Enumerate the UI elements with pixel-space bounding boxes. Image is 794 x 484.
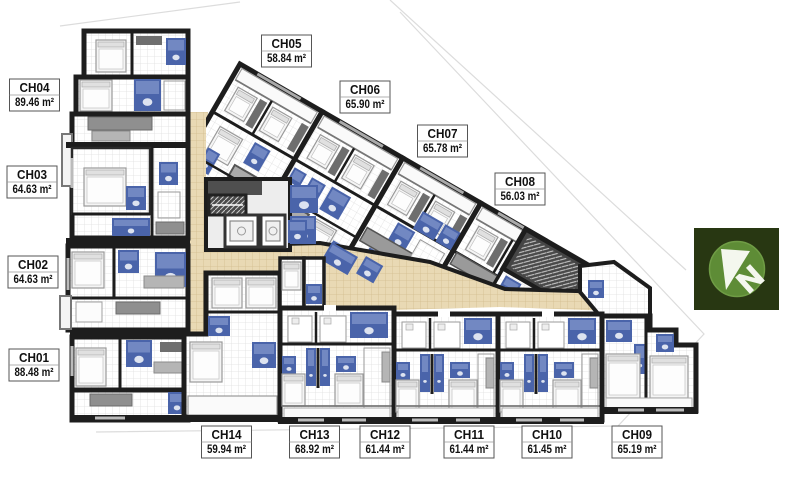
svg-text:CH12: CH12 [370,427,400,442]
svg-text:64.63 m²: 64.63 m² [13,182,52,196]
svg-text:CH09: CH09 [622,427,652,442]
svg-text:CH05: CH05 [272,36,302,51]
svg-text:56.03 m²: 56.03 m² [501,189,540,203]
svg-text:CH02: CH02 [18,257,48,272]
svg-text:65.19 m²: 65.19 m² [618,442,657,456]
svg-text:CH01: CH01 [19,350,49,365]
svg-text:64.63 m²: 64.63 m² [14,272,53,286]
svg-text:61.44 m²: 61.44 m² [366,442,405,456]
svg-text:CH07: CH07 [428,126,458,141]
svg-text:CH13: CH13 [300,427,330,442]
svg-text:61.44 m²: 61.44 m² [450,442,489,456]
svg-text:65.78 m²: 65.78 m² [423,141,462,155]
svg-text:CH08: CH08 [505,174,535,189]
svg-text:61.45 m²: 61.45 m² [528,442,567,456]
svg-text:CH14: CH14 [212,427,243,442]
svg-text:68.92 m²: 68.92 m² [295,442,334,456]
svg-text:89.46 m²: 89.46 m² [15,95,54,109]
svg-text:58.84 m²: 58.84 m² [267,51,306,65]
svg-text:59.94 m²: 59.94 m² [207,442,246,456]
svg-text:65.90 m²: 65.90 m² [346,97,385,111]
svg-text:CH03: CH03 [17,167,47,182]
svg-text:88.48 m²: 88.48 m² [15,365,54,379]
svg-text:CH04: CH04 [20,80,51,95]
svg-text:CH10: CH10 [532,427,562,442]
svg-text:CH06: CH06 [350,82,380,97]
svg-text:CH11: CH11 [454,427,484,442]
